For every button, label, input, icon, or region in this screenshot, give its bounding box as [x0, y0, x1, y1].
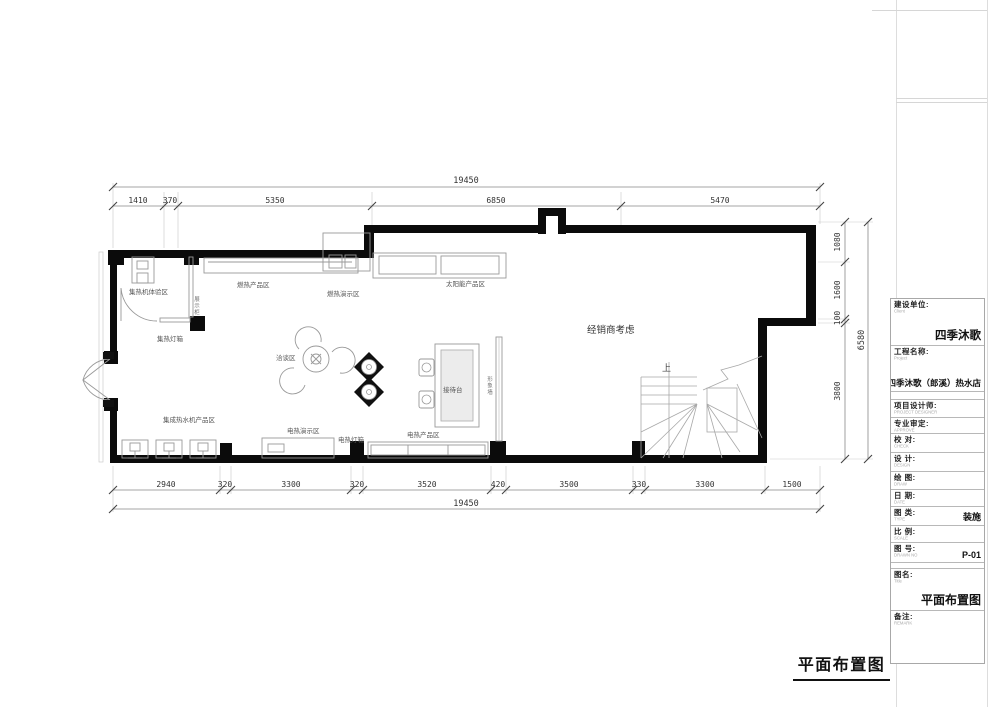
- client-label: 建设单位:: [894, 301, 981, 309]
- draw-label: 绘 图:: [894, 474, 981, 482]
- check-sublabel: CHECK: [894, 444, 968, 449]
- sheetname-value: 平面布置图: [921, 591, 981, 608]
- dim-top-seg-4: 5470: [710, 196, 729, 205]
- dim-top-seg-2: 5350: [265, 196, 284, 205]
- drawing-title-footer: 平面布置图: [793, 651, 890, 681]
- titleblock-row-sheetname: 图名: Title 平面布置图: [891, 569, 984, 611]
- dim-bottom-seg-8: 3300: [695, 480, 714, 489]
- label-electric-lightbox: 电热灯箱: [338, 435, 365, 444]
- dim-bottom-seg-7: 330: [632, 480, 647, 489]
- number-value: P-01: [962, 550, 981, 560]
- client-sublabel: Client: [894, 309, 968, 314]
- check-label: 校 对:: [894, 436, 981, 444]
- sheet-frame-hline-mid1: [896, 98, 987, 99]
- titleblock-row-scale: 比 例: SCALE: [891, 526, 984, 543]
- label-reception-desk: 接待台: [443, 385, 463, 394]
- approve-label: 专业审定:: [894, 420, 981, 428]
- dim-top-seg-1: 370: [163, 196, 178, 205]
- dim-bottom-seg-1: 320: [218, 480, 233, 489]
- stairs: [641, 356, 762, 458]
- drawing-title-text: 平面布置图: [798, 657, 886, 674]
- client-value: 四季沐歌: [935, 327, 981, 343]
- design-sublabel: DESIGN: [894, 463, 968, 468]
- wall-notch-slot: [546, 216, 558, 234]
- type-sublabel: TYPE: [894, 517, 968, 522]
- titleblock-row-project: 工程名称: Project 四季沐歌（郎溪）热水店: [891, 346, 984, 392]
- label-electric-products: 电热产品区: [407, 430, 440, 439]
- sheet-frame-vline-outer: [987, 0, 988, 707]
- dim-bottom-seg-2: 3300: [281, 480, 300, 489]
- label-gas-products: 燃热产品区: [237, 280, 270, 289]
- project-value: 四季沐歌（郎溪）热水店: [891, 377, 981, 389]
- reception-desk: [419, 344, 479, 427]
- scale-sublabel: SCALE: [894, 536, 968, 541]
- titleblock-row-type: 图 类: TYPE 装施: [891, 507, 984, 526]
- dim-bottom-seg-6: 3500: [559, 480, 578, 489]
- dim-bottom-seg-4: 3520: [417, 480, 436, 489]
- titleblock-row-designer: 项目设计师: PROJECT DESIGNER: [891, 400, 984, 418]
- sheet-frame-hline-top: [872, 10, 987, 11]
- sheetname-label: 图名:: [894, 571, 981, 579]
- feature-wall-panel: [496, 337, 502, 441]
- label-display-cabinet: 展示柜: [193, 296, 200, 316]
- dim-right-seg-0: 1080: [833, 232, 842, 251]
- titleblock-row-approve: 专业审定: APPROVE: [891, 418, 984, 434]
- number-sublabel: DRAWN NO: [894, 553, 968, 558]
- diamond-display-stands: [354, 352, 384, 407]
- label-electric-demo: 电热演示区: [287, 426, 320, 435]
- remark-label: 备注:: [894, 613, 981, 621]
- remark-sublabel: REMARK: [894, 621, 968, 626]
- titleblock-row-design: 设 计: DESIGN: [891, 453, 984, 472]
- label-collector-experience: 集热机体验区: [129, 287, 169, 296]
- date-sublabel: DATE: [894, 500, 968, 505]
- scale-label: 比 例:: [894, 528, 981, 536]
- dim-bottom-seg-5: 420: [491, 480, 506, 489]
- label-negotiation: 洽谈区: [276, 353, 296, 362]
- date-label: 日 期:: [894, 492, 981, 500]
- entry-jamb-bottom: [103, 400, 114, 407]
- type-value: 装施: [963, 510, 981, 523]
- dim-bottom-seg-3: 320: [350, 480, 365, 489]
- dim-right-total: 6580: [857, 330, 867, 350]
- project-sublabel: Project: [894, 356, 968, 361]
- draw-sublabel: DRAW: [894, 482, 968, 487]
- label-stairs-up: 上: [662, 363, 671, 373]
- titleblock-row-number: 图 号: DRAWN NO P-01: [891, 543, 984, 563]
- label-collector-lightbox: 集热灯箱: [157, 334, 184, 343]
- label-solar-products: 太阳能产品区: [446, 279, 486, 288]
- dim-bottom-seg-9: 1500: [782, 480, 801, 489]
- entry-door: [83, 359, 110, 400]
- dim-right-seg-1: 1600: [833, 280, 842, 299]
- walls: [110, 208, 816, 463]
- titleblock-row-client: 建设单位: Client 四季沐歌: [891, 299, 984, 346]
- label-feature-wall: 形象墙: [486, 375, 493, 396]
- design-label: 设 计:: [894, 455, 981, 463]
- title-block: 建设单位: Client 四季沐歌 工程名称: Project 四季沐歌（郎溪）…: [890, 298, 985, 664]
- label-dealer-note: 经销商考虑: [587, 324, 635, 336]
- designer-label: 项目设计师:: [894, 402, 981, 410]
- label-integrated-products: 集成热水机产品区: [163, 415, 216, 424]
- dim-top-seg-3: 6850: [486, 196, 505, 205]
- project-label: 工程名称:: [894, 348, 981, 356]
- drawing-sheet: 19450 1410 370 5350 6850 5470 2940 320 3…: [0, 0, 1000, 707]
- dim-bottom-total: 19450: [453, 499, 479, 509]
- dim-right-seg-3: 3800: [833, 381, 842, 400]
- entry-jamb-top: [103, 352, 114, 359]
- titleblock-row-remark: 备注: REMARK: [891, 611, 984, 663]
- solar-products-shelf: [373, 253, 506, 278]
- dim-top-seg-0: 1410: [128, 196, 147, 205]
- sheetname-sublabel: Title: [894, 579, 968, 584]
- floor-plan-canvas: 19450 1410 370 5350 6850 5470 2940 320 3…: [0, 0, 1000, 707]
- titleblock-row-check: 校 对: CHECK: [891, 434, 984, 453]
- dim-bottom-seg-0: 2940: [156, 480, 175, 489]
- left-window-line: [99, 252, 103, 462]
- designer-sublabel: PROJECT DESIGNER: [894, 410, 968, 415]
- area-labels: 集热机体验区 集热灯箱 展示柜 燃热产品区 燃热演示区 太阳能产品区 洽谈区 接…: [129, 279, 671, 444]
- titleblock-row-draw: 绘 图: DRAW: [891, 472, 984, 490]
- dim-top-total: 19450: [453, 176, 479, 186]
- label-gas-demo: 燃热演示区: [327, 289, 360, 298]
- sheet-frame-hline-mid2: [896, 102, 987, 103]
- columns: [104, 250, 645, 462]
- titleblock-row-date: 日 期: DATE: [891, 490, 984, 507]
- dim-right-seg-2: 100: [833, 311, 842, 326]
- approve-sublabel: APPROVE: [894, 428, 968, 433]
- titleblock-spacer: [891, 392, 984, 400]
